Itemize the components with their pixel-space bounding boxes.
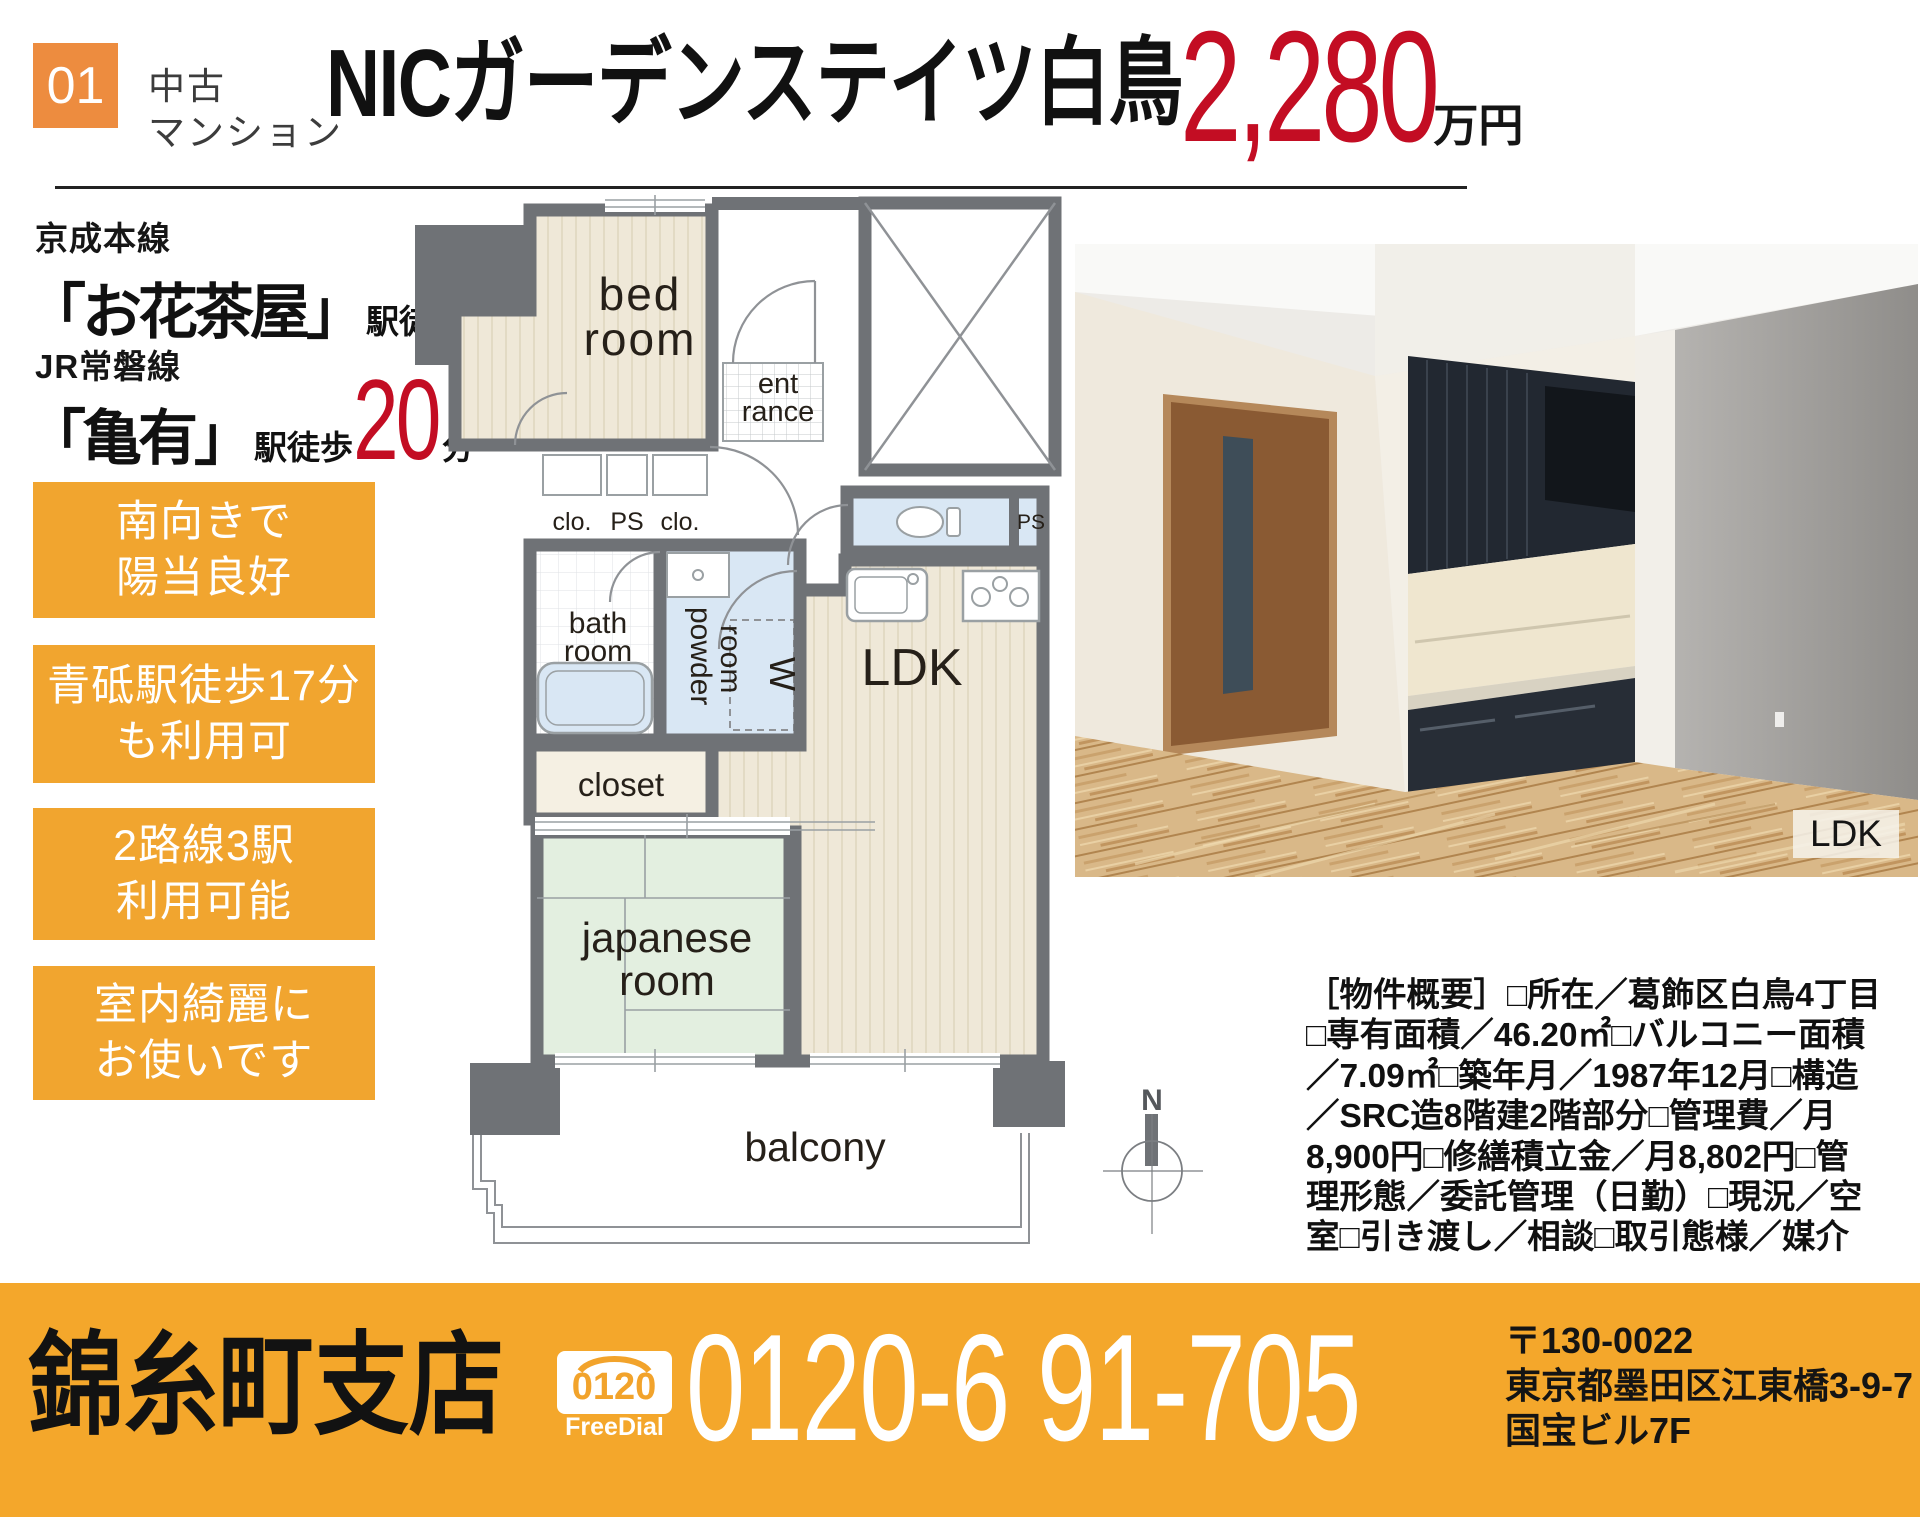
ps-upper-label: PS: [610, 508, 643, 536]
compass-n-label: N: [1141, 1084, 1163, 1117]
washer-label: W: [762, 657, 803, 691]
interior-photo: LDK: [1075, 244, 1918, 877]
overview-line: ／SRC造8階建2階部分□管理費／月: [1306, 1097, 1920, 1137]
window-bedroom: [605, 195, 705, 215]
price: 2,280 万円: [1180, 8, 1523, 166]
powder-room-label-1: powder: [684, 607, 717, 705]
overview-line: ［物件概要］□所在／葛飾区白鳥4丁目: [1306, 976, 1920, 1016]
stove-icon: [963, 571, 1039, 621]
feature-2-line2: も利用可: [33, 714, 375, 770]
real-estate-flyer: 01 中古 マンション NICガーデンステイツ白鳥 2,280 万円 京成本線 …: [0, 0, 1920, 1517]
category-line1: 中古: [148, 64, 343, 110]
balcony-label: balcony: [744, 1124, 886, 1170]
bathroom-label-2: room: [564, 635, 632, 668]
feature-2-line1: 青砥駅徒歩17分: [33, 658, 375, 714]
freedial-number: 0120: [572, 1366, 657, 1408]
wall-top-entrance: [712, 197, 865, 210]
washbasin-icon: [667, 553, 729, 597]
photo-caption: LDK: [1810, 813, 1882, 854]
property-overview: ［物件概要］□所在／葛飾区白鳥4丁目 □専有面積／46.20㎡□バルコニー面積 …: [1306, 976, 1920, 1259]
closet-abbr-right-label: clo.: [661, 508, 700, 536]
feature-4-line2: お使いです: [33, 1033, 375, 1089]
listing-number-badge: 01: [33, 43, 118, 128]
overview-line: 8,900円□修繕積立金／月8,802円□管: [1306, 1138, 1920, 1178]
floor-plan: bed room ent rance clo. PS clo. bath roo…: [415, 195, 1075, 1250]
toilet-icon: [897, 507, 943, 537]
feature-box-south-facing: 南向きで 陽当良好: [33, 482, 375, 618]
property-category: 中古 マンション: [148, 64, 343, 156]
price-value: 2,280: [1180, 8, 1436, 166]
feature-3-line1: 2路線3駅: [33, 818, 375, 874]
station-row-2: 「亀有」 駅徒歩 20 分: [26, 364, 475, 478]
ps-toilet-label: PS: [1017, 511, 1045, 534]
feature-4-line1: 室内綺麗に: [33, 977, 375, 1033]
overview-line: ／7.09㎡□築年月／1987年12月□構造: [1306, 1057, 1920, 1097]
category-line2: マンション: [148, 110, 343, 156]
overview-line: 室□引き渡し／相談□取引態様／媒介: [1306, 1218, 1920, 1258]
feature-box-clean-interior: 室内綺麗に お使いです: [33, 966, 375, 1100]
toilet-room: [847, 492, 1043, 552]
station-name-2: 「亀有」: [26, 390, 250, 477]
bathtub-icon: [538, 663, 652, 733]
right-wall: [1675, 284, 1918, 800]
range-hood: [1545, 386, 1635, 512]
phone-number: 0120-6 91-705: [686, 1312, 1360, 1464]
ldk-label: LDK: [861, 639, 962, 697]
wall-block-bottomleft: [470, 1063, 560, 1135]
building-name: 国宝ビル7F: [1505, 1408, 1913, 1453]
kitchen-sink-icon: [847, 569, 927, 621]
compass-icon: N: [1085, 1078, 1220, 1240]
listing-number: 01: [47, 56, 105, 116]
branch-name: 錦糸町支店: [28, 1330, 504, 1442]
overview-line: □専有面積／46.20㎡□バルコニー面積: [1306, 1016, 1920, 1056]
japanese-room-label-1: japanese: [580, 914, 752, 961]
address-line: 東京都墨田区江東橋3-9-7: [1505, 1363, 1913, 1408]
closet-label: closet: [578, 766, 664, 803]
walk-label-2: 駅徒歩: [254, 421, 353, 469]
feature-3-line2: 利用可能: [33, 874, 375, 930]
feature-1-line2: 陽当良好: [33, 550, 375, 606]
corridor-closets: [543, 455, 707, 495]
feature-1-line1: 南向きで: [33, 494, 375, 550]
price-unit: 万円: [1433, 89, 1523, 154]
wall-block-bottomright: [993, 1061, 1065, 1127]
station-name-1: 「お花茶屋」: [26, 264, 362, 351]
property-title: NICガーデンステイツ白鳥: [326, 30, 1182, 138]
postal-code: 〒130-0022: [1505, 1318, 1913, 1363]
closet-abbr-left-label: clo.: [553, 508, 592, 536]
powder-room-label-2: room: [714, 625, 747, 693]
elevator-shaft: [865, 203, 1055, 470]
bedroom-label-2: room: [584, 313, 697, 365]
overview-line: 理形態／委託管理（日勤）□現況／空: [1306, 1178, 1920, 1218]
feature-box-aoto-station: 青砥駅徒歩17分 も利用可: [33, 645, 375, 783]
freedial-label: FreeDial: [557, 1413, 672, 1442]
office-address: 〒130-0022 東京都墨田区江東橋3-9-7 国宝ビル7F: [1505, 1318, 1913, 1453]
entrance-label-2: rance: [742, 396, 815, 428]
feature-box-routes: 2路線3駅 利用可能: [33, 808, 375, 940]
header-divider: [55, 186, 1467, 189]
japanese-room-label-2: room: [619, 957, 715, 1004]
freedial-logo: 0120: [557, 1351, 672, 1414]
